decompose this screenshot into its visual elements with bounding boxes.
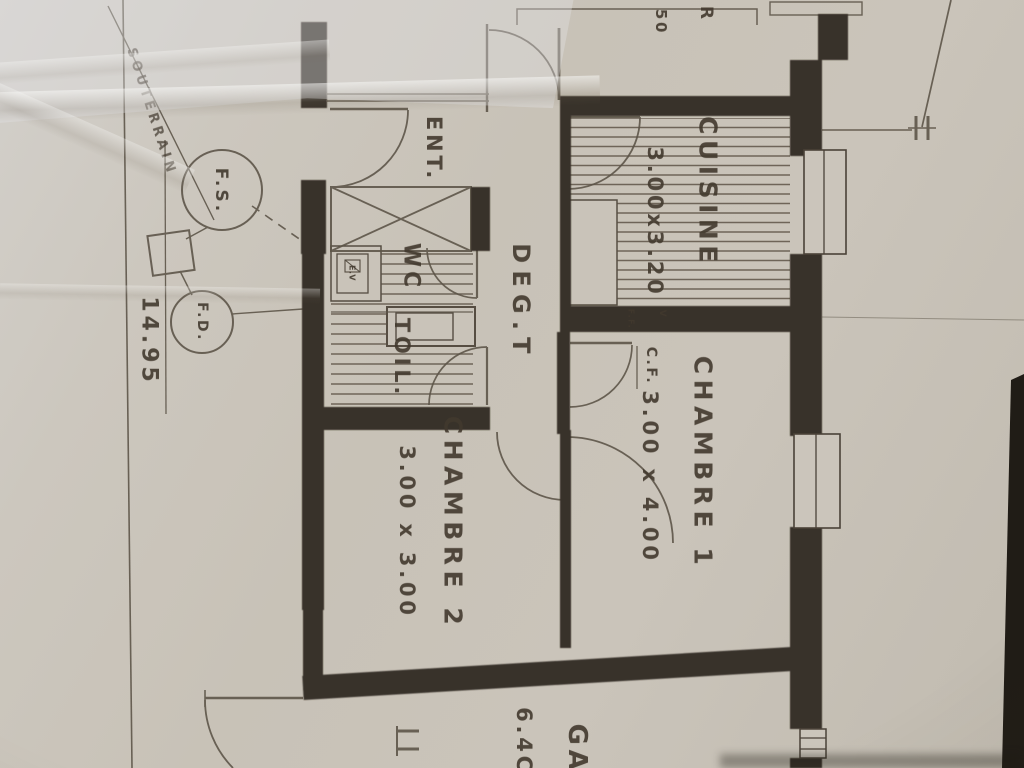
annotation-top-letter: R: [696, 6, 716, 22]
room-label-entrance: ENT.: [422, 116, 446, 182]
annotation-flue-small: F.F.: [627, 309, 636, 329]
room-label-hallway: DEG.T: [507, 243, 535, 361]
room-label-toilet: TOIL.: [390, 318, 414, 398]
dim-label-bedroom2: 3.00 x 3.00: [395, 445, 419, 618]
annotation-vent-mark: V: [657, 310, 667, 319]
room-label-wc: WC: [399, 243, 424, 291]
room-label-kitchen: CUISINE: [694, 116, 723, 268]
floor-plan-photo: ENT. CUISINE 3.00x3.20 DEG.T WC TOIL. CH…: [0, 0, 1024, 768]
annotation-drain: F.D.: [194, 302, 210, 342]
dim-label-bedroom1: 3.00 x 4.00: [638, 390, 662, 563]
dim-label-kitchen: 3.00x3.20: [643, 146, 667, 297]
plan-labels: ENT. CUISINE 3.00x3.20 DEG.T WC TOIL. CH…: [0, 0, 1024, 768]
annotation-boundary-length: 14.95: [137, 296, 162, 385]
annotation-air-vent: E.V: [348, 265, 357, 281]
room-label-bedroom2: CHAMBRE 2: [439, 416, 468, 630]
annotation-top-dim: 50: [652, 9, 670, 35]
annotation-flue: C.F.: [643, 347, 659, 386]
annotation-underground: SOUTERRAIN: [123, 46, 179, 178]
room-label-bedroom1: CHAMBRE 1: [689, 356, 718, 570]
room-label-garage: GA: [562, 724, 592, 768]
dim-label-garage: 6.4C: [512, 707, 536, 768]
annotation-septic-tank: F.S.: [211, 168, 231, 215]
